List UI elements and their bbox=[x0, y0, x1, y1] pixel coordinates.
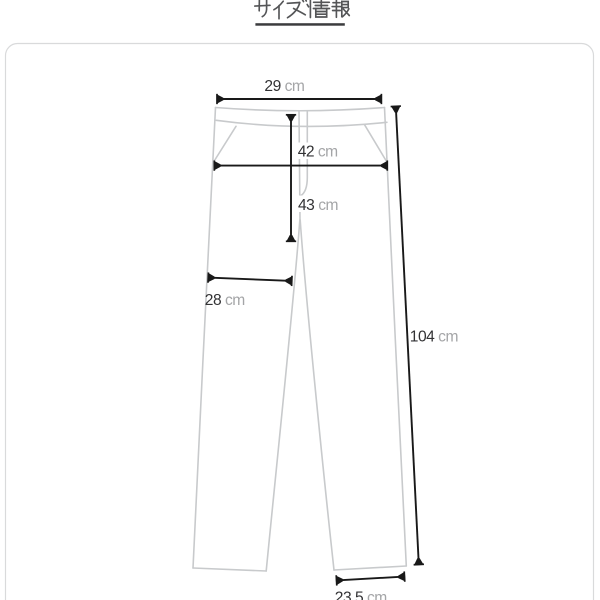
svg-text:23.5 cm: 23.5 cm bbox=[335, 589, 387, 600]
svg-text:104 cm: 104 cm bbox=[410, 329, 458, 346]
svg-text:42 cm: 42 cm bbox=[298, 144, 338, 161]
svg-text:43 cm: 43 cm bbox=[298, 197, 338, 214]
svg-text:28 cm: 28 cm bbox=[205, 292, 245, 309]
svg-text:29 cm: 29 cm bbox=[264, 78, 304, 95]
